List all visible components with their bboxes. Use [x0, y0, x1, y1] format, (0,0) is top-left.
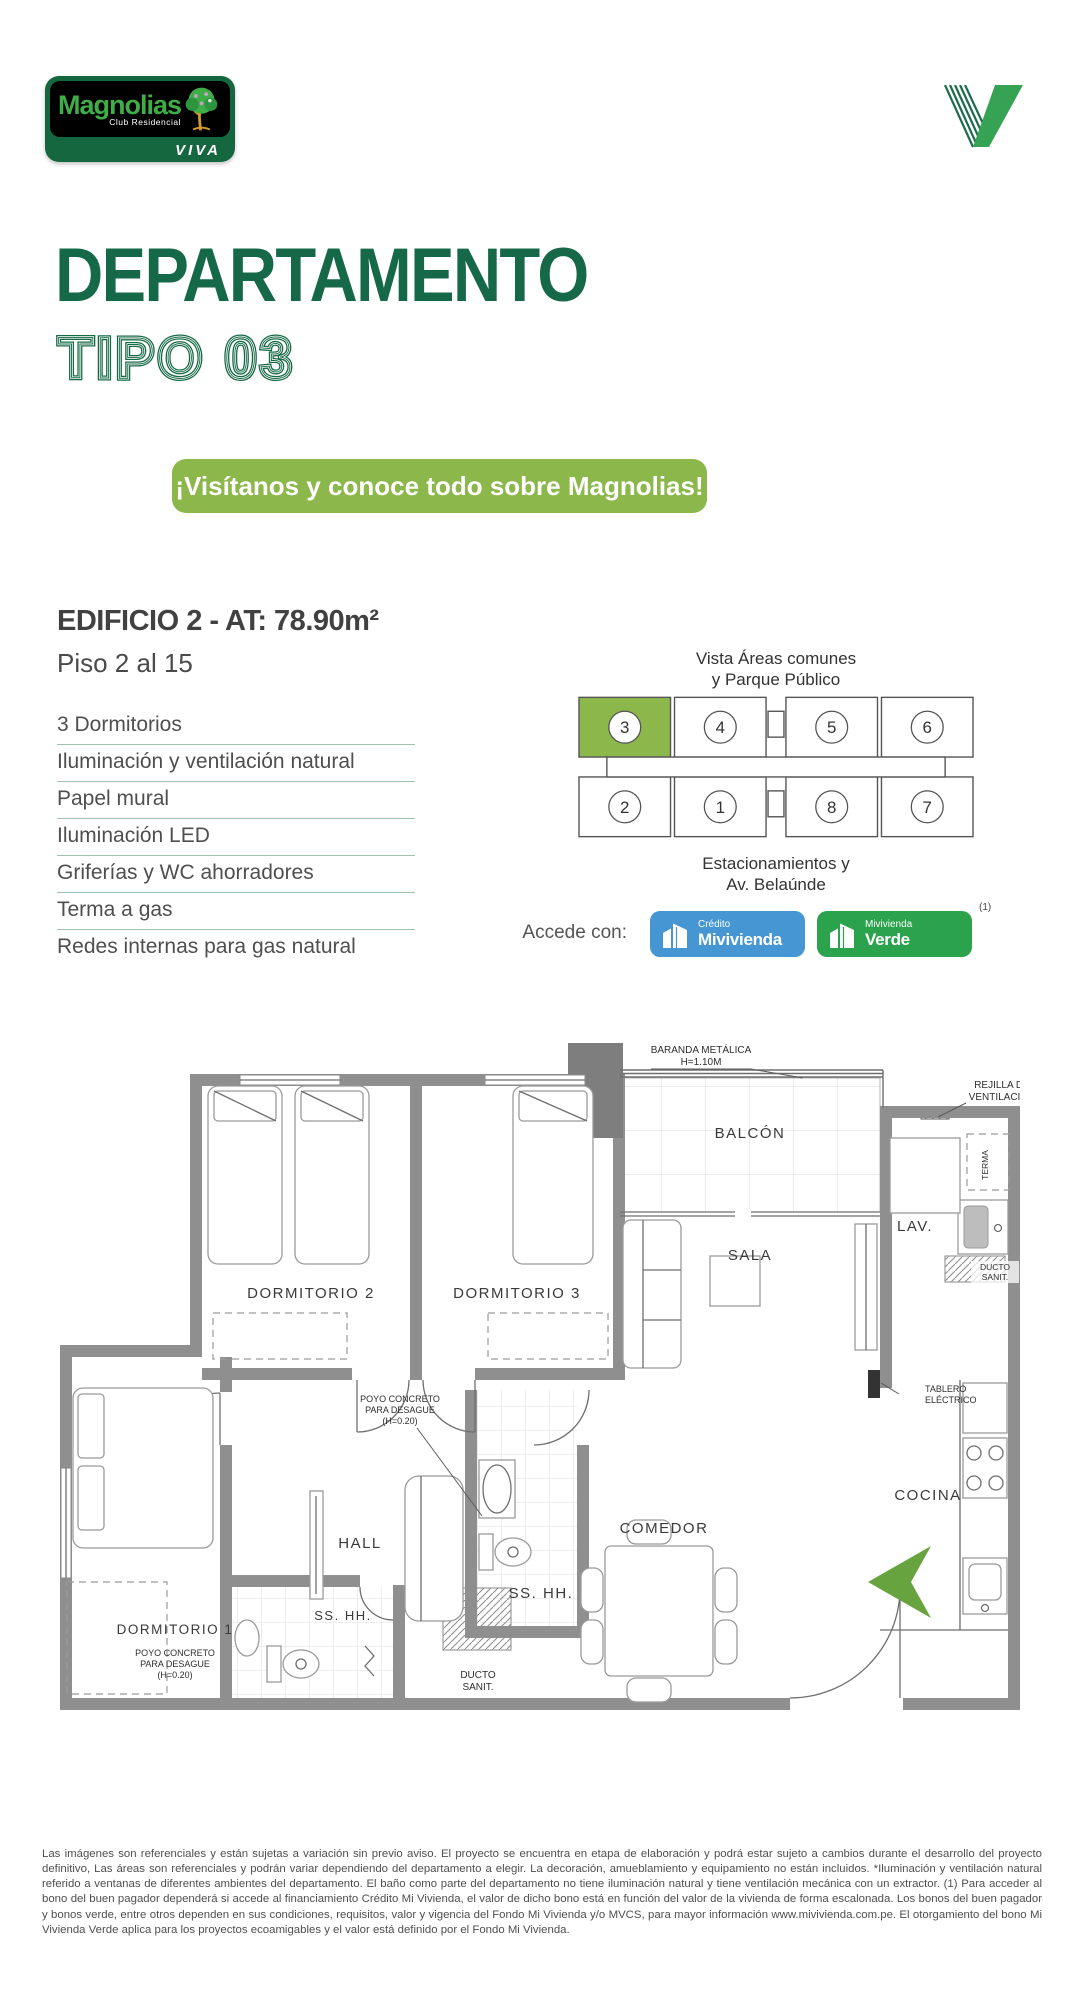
annotation-ducto-right: DUCTO	[980, 1262, 1010, 1272]
room-label-balcon: BALCÓN	[715, 1125, 786, 1142]
floors-range: Piso 2 al 15	[57, 648, 193, 679]
feature-item: Iluminación y ventilación natural	[57, 745, 415, 782]
svg-text:(H=0.20): (H=0.20)	[382, 1416, 417, 1426]
room-label-cocina: COCINA	[894, 1487, 961, 1504]
viva-v-icon	[943, 85, 1023, 149]
svg-text:H=1.10M: H=1.10M	[681, 1057, 722, 1068]
keyplan-unit-number: 4	[716, 718, 725, 737]
flyer-page: Magnolias Club Residencial VIVA	[0, 0, 1080, 2001]
mivivienda-verde-badge: Mivivienda Verde	[817, 911, 972, 957]
page-title: DEPARTAMENTO	[55, 238, 588, 314]
keyplan-unit-number: 7	[923, 798, 932, 817]
svg-text:VENTILACIÓN: VENTILACIÓN	[969, 1090, 1020, 1103]
financing-label: Accede con:	[470, 922, 627, 944]
keyplan-unit-number: 6	[923, 718, 932, 737]
tree-icon	[181, 84, 222, 134]
feature-item: Redes internas para gas natural	[57, 930, 415, 966]
badge-line1: Crédito	[698, 920, 782, 930]
credito-mivivienda-badge: Crédito Mivivienda	[650, 911, 805, 957]
annotation-tablero: TABLERO	[925, 1384, 966, 1394]
annotation-ducto-bottom: DUCTO	[460, 1670, 496, 1681]
room-label-comedor: COMEDOR	[620, 1520, 709, 1537]
room-label-dormitorio1: DORMITORIO 1	[117, 1622, 234, 1637]
keyplan-unit-number: 3	[620, 718, 629, 737]
balcony-floor	[620, 1078, 880, 1212]
magnolias-logo: Magnolias Club Residencial VIVA	[45, 76, 235, 162]
room-label-dormitorio2: DORMITORIO 2	[247, 1285, 375, 1302]
legal-disclaimer: Las imágenes son referenciales y están s…	[42, 1847, 1042, 1938]
electrical-panel	[868, 1370, 880, 1398]
feature-item: 3 Dormitorios	[57, 708, 415, 745]
svg-text:PARA DESAGUE: PARA DESAGUE	[365, 1405, 435, 1415]
svg-text:SANIT.: SANIT.	[982, 1272, 1008, 1282]
feature-item: Griferías y WC ahorradores	[57, 856, 415, 893]
keyplan-unit-number: 1	[716, 798, 725, 817]
room-label-dormitorio3: DORMITORIO 3	[453, 1285, 581, 1302]
sofa	[623, 1220, 681, 1368]
mivivienda-building-icon	[827, 921, 857, 948]
page-subtitle-graphic: TIPO 03 TIPO 03 TIPO 03	[50, 320, 380, 400]
room-label-lav: LAV.	[897, 1218, 933, 1235]
tv-cabinet	[855, 1224, 877, 1350]
feature-item: Terma a gas	[57, 893, 415, 930]
annotation-rejilla: REJILLA DE	[974, 1080, 1020, 1091]
feature-item: Iluminación LED	[57, 819, 415, 856]
magnolias-logo-panel: Magnolias Club Residencial	[50, 81, 230, 137]
dining-table	[581, 1520, 737, 1702]
room-label-sshh1: SS. HH.	[509, 1585, 574, 1602]
room-label-sala: SALA	[728, 1247, 772, 1264]
feature-item: Papel mural	[57, 782, 415, 819]
svg-text:SANIT.: SANIT.	[462, 1682, 493, 1693]
mivivienda-building-icon	[660, 921, 690, 948]
laundry-sink	[958, 1200, 1008, 1254]
svg-text:(H=0.20): (H=0.20)	[157, 1670, 192, 1680]
annotation-poyo-top: POYO CONCRETO	[360, 1394, 440, 1404]
brand-name: Magnolias	[58, 92, 181, 119]
building-keyplan: 3 4 5 6 2 1 8 7	[577, 691, 975, 843]
viva-wordmark: VIVA	[175, 142, 221, 159]
annotation-poyo-bottom: POYO CONCRETO	[135, 1648, 215, 1658]
visit-banner-text: ¡Visítanos y conoce todo sobre Magnolias…	[175, 471, 703, 502]
annotation-terma: TERMA	[980, 1150, 990, 1180]
room-label-sshh2: SS. HH.	[314, 1608, 371, 1623]
svg-text:TIPO 03: TIPO 03	[58, 326, 295, 391]
keyplan-unit-number: 8	[827, 798, 836, 817]
svg-text:ELÉCTRICO: ELÉCTRICO	[925, 1395, 977, 1405]
badge-line2: Mivivienda	[698, 931, 782, 948]
visit-banner: ¡Visítanos y conoce todo sobre Magnolias…	[172, 459, 707, 513]
feature-list: 3 Dormitorios Iluminación y ventilación …	[57, 708, 415, 966]
badge-line1: Mivivienda	[865, 920, 912, 930]
building-title: EDIFICIO 2 - AT: 78.90m²	[57, 605, 379, 638]
badge-line2: Verde	[865, 931, 912, 948]
room-label-hall: HALL	[338, 1535, 382, 1552]
keyplan-caption-top: Vista Áreas comunes y Parque Público	[577, 648, 975, 691]
keyplan-caption-bottom: Estacionamientos y Av. Belaúnde	[577, 853, 975, 896]
magnolias-logo-text: Magnolias Club Residencial	[58, 92, 181, 127]
financing-footnote-marker: (1)	[979, 902, 991, 913]
keyplan-unit-number: 2	[620, 798, 629, 817]
svg-text:PARA DESAGUE: PARA DESAGUE	[140, 1659, 210, 1669]
floorplan: BALCÓN LAV. SALA DORMITORIO 2 DORMITORIO…	[45, 998, 1020, 1758]
keyplan-unit-number: 5	[827, 718, 836, 737]
annotation-baranda: BARANDA METÁLICA	[651, 1043, 752, 1056]
